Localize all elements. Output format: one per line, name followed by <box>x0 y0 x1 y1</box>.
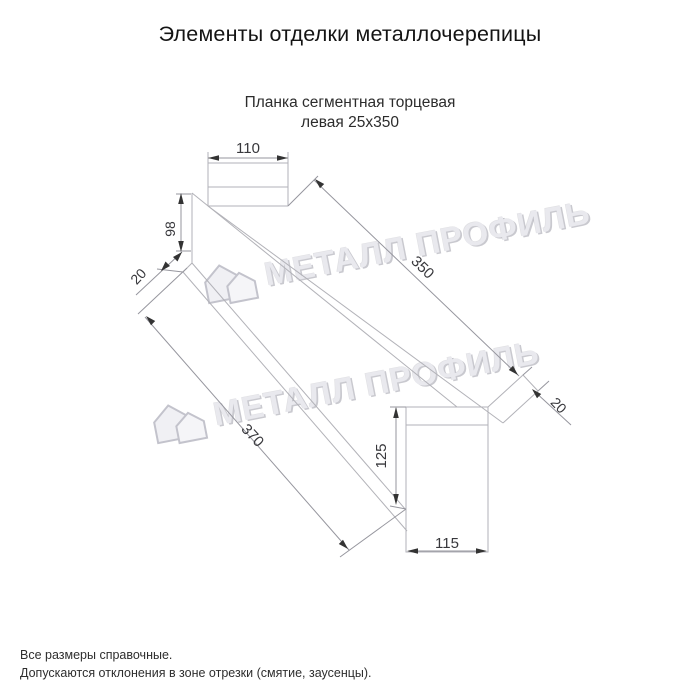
dim-label-end-face-width: 115 <box>435 535 459 552</box>
dim-label-length-bottom: 370 <box>238 421 268 451</box>
product-name-line1: Планка сегментная торцевая <box>0 94 700 112</box>
page-title: Элементы отделки металлочерепицы <box>0 22 700 47</box>
dim-label-length-top: 350 <box>407 253 437 283</box>
product-name-line2: левая 25х350 <box>0 114 700 132</box>
dimension-arrows <box>146 155 541 554</box>
footer-note-1: Все размеры справочные. <box>20 648 172 662</box>
dim-label-left-end-height: 98 <box>162 221 178 237</box>
part-outline <box>183 152 538 552</box>
dimension-lines <box>136 158 571 557</box>
footer-note-2: Допускаются отклонения в зоне отрезки (с… <box>20 666 372 680</box>
dim-label-end-hem: 20 <box>548 394 570 416</box>
dim-label-end-face-height: 125 <box>373 443 390 468</box>
dim-label-top-face-width: 110 <box>236 140 260 157</box>
dim-label-left-end-hem: 20 <box>127 265 149 287</box>
drawing-page: МЕТАЛЛ ПРОФИЛЬ МЕТАЛЛ ПРОФИЛЬ <box>0 0 700 700</box>
